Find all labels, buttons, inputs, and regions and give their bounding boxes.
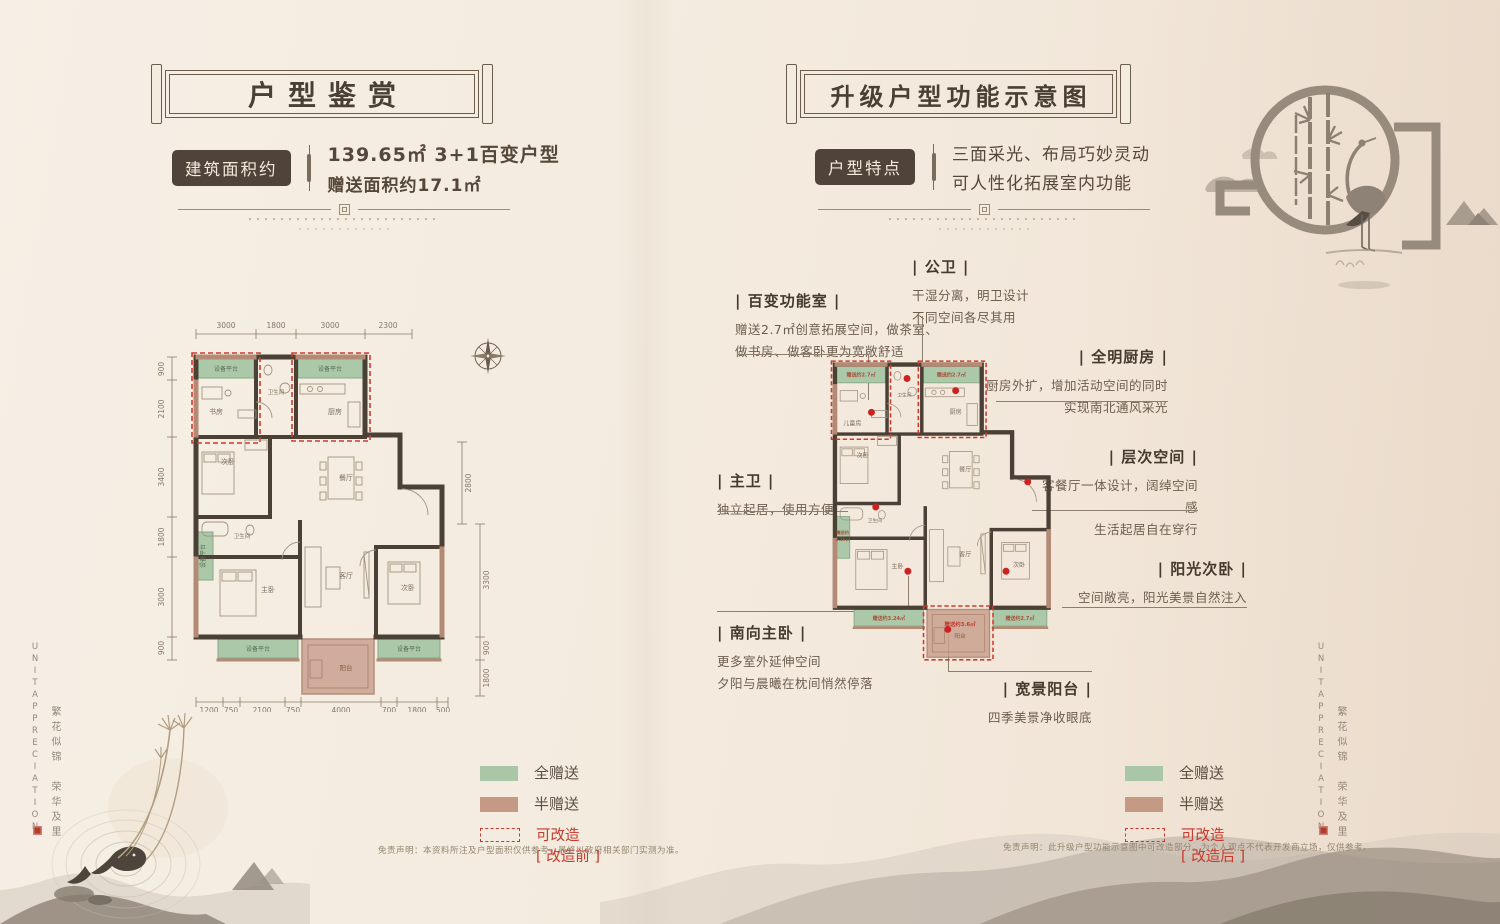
left-panel-title: 户型鉴赏 bbox=[236, 74, 408, 114]
koi-fish bbox=[67, 847, 146, 884]
svg-text:设备平台: 设备平台 bbox=[214, 365, 238, 373]
svg-text:2100: 2100 bbox=[157, 399, 166, 418]
svg-text:700: 700 bbox=[382, 706, 397, 712]
svg-text:卫生间: 卫生间 bbox=[868, 517, 883, 524]
svg-text:赠送约3.24㎡: 赠送约3.24㎡ bbox=[873, 615, 905, 622]
svg-text:1200: 1200 bbox=[199, 706, 218, 712]
svg-text:3400: 3400 bbox=[157, 467, 166, 486]
svg-text:赠送约2.7㎡: 赠送约2.7㎡ bbox=[1005, 615, 1034, 622]
svg-text:设备平台: 设备平台 bbox=[199, 544, 207, 568]
scroll-rod-icon bbox=[1120, 64, 1131, 124]
disclaimer-right: 免责声明：此升级户型功能示意图中可改造部分，为个人观点不代表开发商立场，仅供参考… bbox=[1003, 841, 1372, 853]
svg-text:次卧: 次卧 bbox=[221, 457, 235, 466]
svg-text:赠送约2.7㎡: 赠送约2.7㎡ bbox=[847, 372, 876, 379]
furniture bbox=[202, 365, 428, 616]
vertical-ornament bbox=[931, 144, 936, 190]
svg-text:1800: 1800 bbox=[482, 668, 491, 687]
legend-right: 全赠送 半赠送 可改造 [ 改造后 ] bbox=[1125, 766, 1295, 884]
svg-text:900: 900 bbox=[482, 641, 491, 656]
svg-text:设备平台: 设备平台 bbox=[318, 365, 342, 373]
full-gift-swatch bbox=[1125, 766, 1163, 781]
side-mark-cn: 繁花似锦 荣华及里 bbox=[1333, 642, 1348, 841]
svg-text:书房: 书房 bbox=[209, 407, 223, 416]
svg-text:3300: 3300 bbox=[482, 570, 491, 589]
remodel-swatch bbox=[480, 828, 520, 842]
svg-text:1800: 1800 bbox=[157, 527, 166, 546]
side-mark-en: UNITAPPRECIATION bbox=[1316, 642, 1326, 817]
side-mark-left: UNITAPPRECIATION 繁花似锦 荣华及里 bbox=[30, 642, 62, 841]
svg-text:赠送约2.7㎡: 赠送约2.7㎡ bbox=[937, 372, 966, 379]
feature-label-badge: 户型特点 bbox=[815, 149, 915, 185]
svg-text:餐厅: 餐厅 bbox=[959, 465, 971, 473]
svg-text:设备平台: 设备平台 bbox=[397, 645, 421, 653]
half-gift-swatch bbox=[480, 797, 518, 812]
svg-text:卫生间: 卫生间 bbox=[897, 392, 912, 399]
feature-line2: 可人性化拓展室内功能 bbox=[952, 169, 1150, 194]
seal-square-icon bbox=[979, 204, 990, 215]
disclaimer-left: 免责声明：本资料所注及户型面积仅供参考，最终以政府相关部门实测为准。 bbox=[378, 844, 684, 856]
area-line2: 赠送面积约17.1㎡ bbox=[328, 171, 560, 196]
svg-text:厨房: 厨房 bbox=[950, 408, 962, 416]
svg-text:3000: 3000 bbox=[157, 587, 166, 606]
round-window-crane-ornament bbox=[1150, 35, 1500, 305]
svg-text:次卧: 次卧 bbox=[1013, 561, 1025, 569]
svg-text:900: 900 bbox=[157, 362, 166, 377]
left-info-row: 建筑面积约 139.65㎡ 3+1百变户型 赠送面积约17.1㎡ bbox=[172, 140, 560, 196]
brochure-page: UNITAPPRECIATION 繁花似锦 荣华及里 UNITAPPRECIAT… bbox=[0, 0, 1500, 924]
legend-label: 半赠送 bbox=[1179, 797, 1224, 812]
dotted-rule bbox=[299, 228, 389, 230]
svg-text:2800: 2800 bbox=[464, 473, 473, 492]
right-info-row: 户型特点 三面采光、布局巧妙灵动 可人性化拓展室内功能 bbox=[815, 140, 1150, 194]
scroll-rod-icon bbox=[482, 64, 493, 124]
annotation-wide-balcony: | 宽景阳台 | 四季美景净收眼底 bbox=[965, 676, 1092, 729]
svg-text:客厅: 客厅 bbox=[959, 551, 971, 559]
bamboo-icon bbox=[1294, 93, 1343, 225]
svg-text:阳台: 阳台 bbox=[954, 632, 966, 640]
svg-text:3000: 3000 bbox=[216, 321, 235, 330]
svg-text:2.16㎡: 2.16㎡ bbox=[836, 536, 851, 542]
svg-text:餐厅: 餐厅 bbox=[339, 473, 353, 482]
red-seal-icon bbox=[1319, 826, 1328, 835]
seal-square-icon bbox=[339, 204, 350, 215]
scroll-rod-icon bbox=[786, 64, 797, 124]
svg-text:900: 900 bbox=[157, 641, 166, 656]
side-mark-cn: 繁花似锦 荣华及里 bbox=[47, 642, 62, 841]
gift-areas bbox=[197, 359, 440, 658]
room-labels: 赠送约2.7㎡ 赠送约2.7㎡ 赠送约 2.16㎡ 赠送约3.24㎡ 赠送约2.… bbox=[836, 372, 1035, 640]
svg-text:2300: 2300 bbox=[378, 321, 397, 330]
svg-text:1800: 1800 bbox=[407, 706, 426, 712]
right-banner: 升级户型功能示意图 bbox=[800, 70, 1117, 118]
walls bbox=[196, 357, 442, 637]
svg-text:阳台: 阳台 bbox=[340, 663, 353, 672]
mountain-icon bbox=[1446, 201, 1498, 225]
floorplan-right: 赠送约2.7㎡ 赠送约2.7㎡ 赠送约 2.16㎡ 赠送约3.24㎡ 赠送约2.… bbox=[795, 308, 1125, 673]
svg-text:750: 750 bbox=[286, 706, 301, 712]
svg-text:2100: 2100 bbox=[252, 706, 271, 712]
svg-text:次卧: 次卧 bbox=[401, 583, 415, 592]
vertical-ornament bbox=[307, 145, 312, 191]
furniture bbox=[840, 372, 1036, 590]
area-label-badge: 建筑面积约 bbox=[172, 150, 291, 186]
svg-text:主卧: 主卧 bbox=[891, 563, 903, 571]
legend-label: 半赠送 bbox=[534, 797, 579, 812]
red-seal-icon bbox=[33, 826, 42, 835]
area-line1: 139.65㎡ 3+1百变户型 bbox=[328, 140, 560, 167]
remodel-swatch bbox=[1125, 828, 1165, 842]
svg-text:卫生间: 卫生间 bbox=[234, 532, 251, 540]
svg-text:卫生间: 卫生间 bbox=[268, 388, 285, 396]
dotted-rule bbox=[889, 218, 1079, 220]
half-gift-walls bbox=[835, 365, 1049, 628]
left-banner: 户型鉴赏 bbox=[165, 70, 479, 118]
svg-text:设备平台: 设备平台 bbox=[246, 645, 270, 653]
dotted-rule bbox=[939, 228, 1029, 230]
dotted-rule bbox=[249, 218, 439, 220]
half-gift-walls bbox=[196, 357, 442, 660]
svg-text:客厅: 客厅 bbox=[339, 571, 353, 580]
right-divider bbox=[818, 204, 1150, 215]
right-panel-title: 升级户型功能示意图 bbox=[826, 77, 1092, 112]
svg-text:主卧: 主卧 bbox=[261, 585, 275, 594]
left-divider bbox=[178, 204, 510, 215]
side-mark-right: UNITAPPRECIATION 繁花似锦 荣华及里 bbox=[1316, 642, 1348, 841]
svg-text:500: 500 bbox=[436, 706, 451, 712]
compass-icon bbox=[470, 338, 506, 374]
balcony bbox=[302, 639, 374, 694]
ink-mountains-right bbox=[600, 742, 1500, 924]
svg-text:儿童房: 儿童房 bbox=[843, 419, 861, 427]
legend-label: 全赠送 bbox=[1179, 766, 1224, 781]
side-mark-en: UNITAPPRECIATION bbox=[30, 642, 40, 817]
floorplan-left: 3000 1800 3000 2300 900 2100 3400 1800 3… bbox=[150, 292, 530, 712]
svg-text:厨房: 厨房 bbox=[328, 407, 342, 416]
walls bbox=[835, 365, 1049, 608]
legend-label: 全赠送 bbox=[534, 766, 579, 781]
svg-text:次卧: 次卧 bbox=[857, 452, 869, 460]
svg-text:4000: 4000 bbox=[331, 706, 350, 712]
svg-text:750: 750 bbox=[224, 706, 239, 712]
feature-line1: 三面采光、布局巧妙灵动 bbox=[952, 140, 1150, 165]
full-gift-swatch bbox=[480, 766, 518, 781]
half-gift-swatch bbox=[1125, 797, 1163, 812]
svg-text:赠送约: 赠送约 bbox=[837, 529, 849, 535]
gift-areas bbox=[836, 366, 1047, 626]
legend-left: 全赠送 半赠送 可改造 [ 改造前 ] bbox=[480, 766, 650, 884]
svg-text:3000: 3000 bbox=[320, 321, 339, 330]
scroll-rod-icon bbox=[151, 64, 162, 124]
svg-text:1800: 1800 bbox=[266, 321, 285, 330]
